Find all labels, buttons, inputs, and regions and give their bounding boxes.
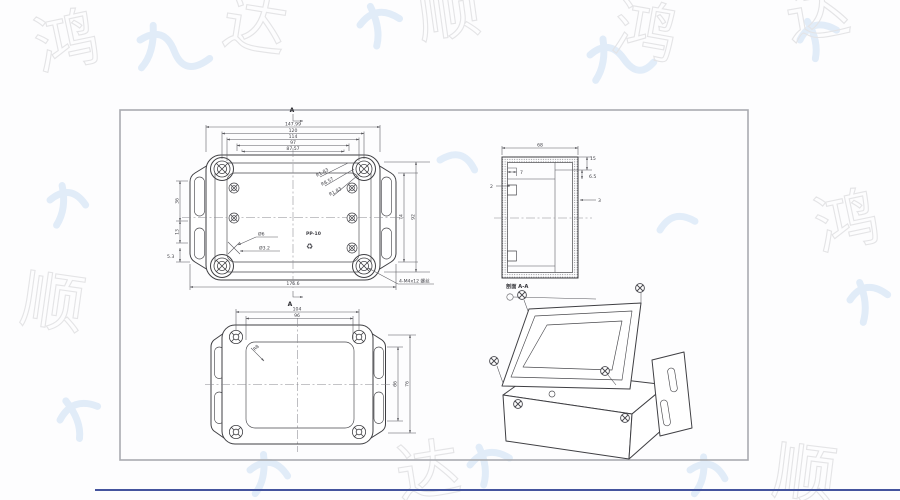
inner-screw-boss [229,183,239,193]
dim-step: 6.5 [589,174,596,180]
corner-screw [214,258,230,274]
rim-screw-boss [514,400,523,409]
flange-slot [374,392,384,424]
corner-screw [352,330,365,343]
flange-slot [382,228,392,259]
lid-screw [490,357,499,366]
section-clip [508,185,517,195]
dim-slot-height: 74 [399,214,405,220]
isometric-view [490,284,692,459]
dim-label: 7 [520,170,523,176]
inner-screw-boss [347,213,357,223]
extension-lines [176,181,190,262]
dim-body-height: 76 [405,381,411,387]
dim-overall-width: 147.99 [285,122,301,128]
top-view: Ø6 Ø3.2 PP-10 ♻ R1.83 R8.57 R1.83 147.99… [167,107,434,308]
corner-screw [356,161,372,177]
section-arrow [293,291,303,297]
hole-diameter-label: Ø6 [258,231,265,238]
recycle-icon: ♻ [306,242,313,251]
dim-label: 13 [175,229,181,235]
dim-slot-spacing: 36 [175,198,181,204]
screenshot-canvas: 鸿 达 顺 鸿 达 顺 鸿 达 顺 [0,0,900,500]
lid-screw [601,367,610,376]
cable-knockout [549,391,555,397]
inner-screw-boss [229,213,239,223]
dim-inner-width: 96 [294,313,300,319]
dim-slot-spacing: 66 [393,381,399,387]
corner-screw [214,161,230,177]
screw-note-label: 4-M4x12 螺丝 [399,278,430,285]
section-clip [508,251,517,261]
detail-callout-circle [507,294,513,300]
lid-screw [636,284,645,293]
corner-screw [229,330,242,343]
dim-flange-width: 176.6 [286,281,299,287]
dim-body-height: 92 [411,214,417,220]
dim-screw-spacing: 120 [289,128,298,134]
flange-slot [382,177,392,216]
dim-inner-width: 97 [290,140,296,146]
flange-slot [195,177,205,216]
dim-wall-thickness: 3 [598,198,601,204]
extension-lines [387,335,416,433]
section-view: 68 15 6.5 3 7 2 剖面 A-A [490,143,601,301]
dim-label: 2 [490,184,493,190]
section-title: 剖面 A-A [506,282,528,290]
dim-screw-spacing: 104 [293,307,302,313]
dim-lid-height: 15 [590,156,596,162]
dim-lid-width: 114 [289,134,298,140]
dim-recess-width: 87.57 [286,146,299,152]
section-mark-label: A [290,107,295,114]
section-arrow [293,114,303,121]
drawing-sheet: Ø6 Ø3.2 PP-10 ♻ R1.83 R8.57 R1.83 147.99… [0,0,900,500]
rim-screw-boss [621,414,630,423]
dim-depth: 68 [537,143,543,149]
inner-screw-boss [347,183,357,193]
bottom-view: R8 104 96 66 76 [205,307,416,453]
flange-slot [374,347,384,379]
material-mark-label: PP-10 [306,231,321,237]
flange-slot [195,228,205,259]
lid-screw [518,291,527,300]
hole-diameter-label: Ø3.2 [259,245,270,252]
section-lid-lines [508,163,573,273]
corner-screw [229,425,242,438]
corner-screw [352,425,365,438]
corner-screw [356,258,372,274]
inner-screw-boss [347,243,357,253]
dim-label: 5.3 [167,254,174,260]
